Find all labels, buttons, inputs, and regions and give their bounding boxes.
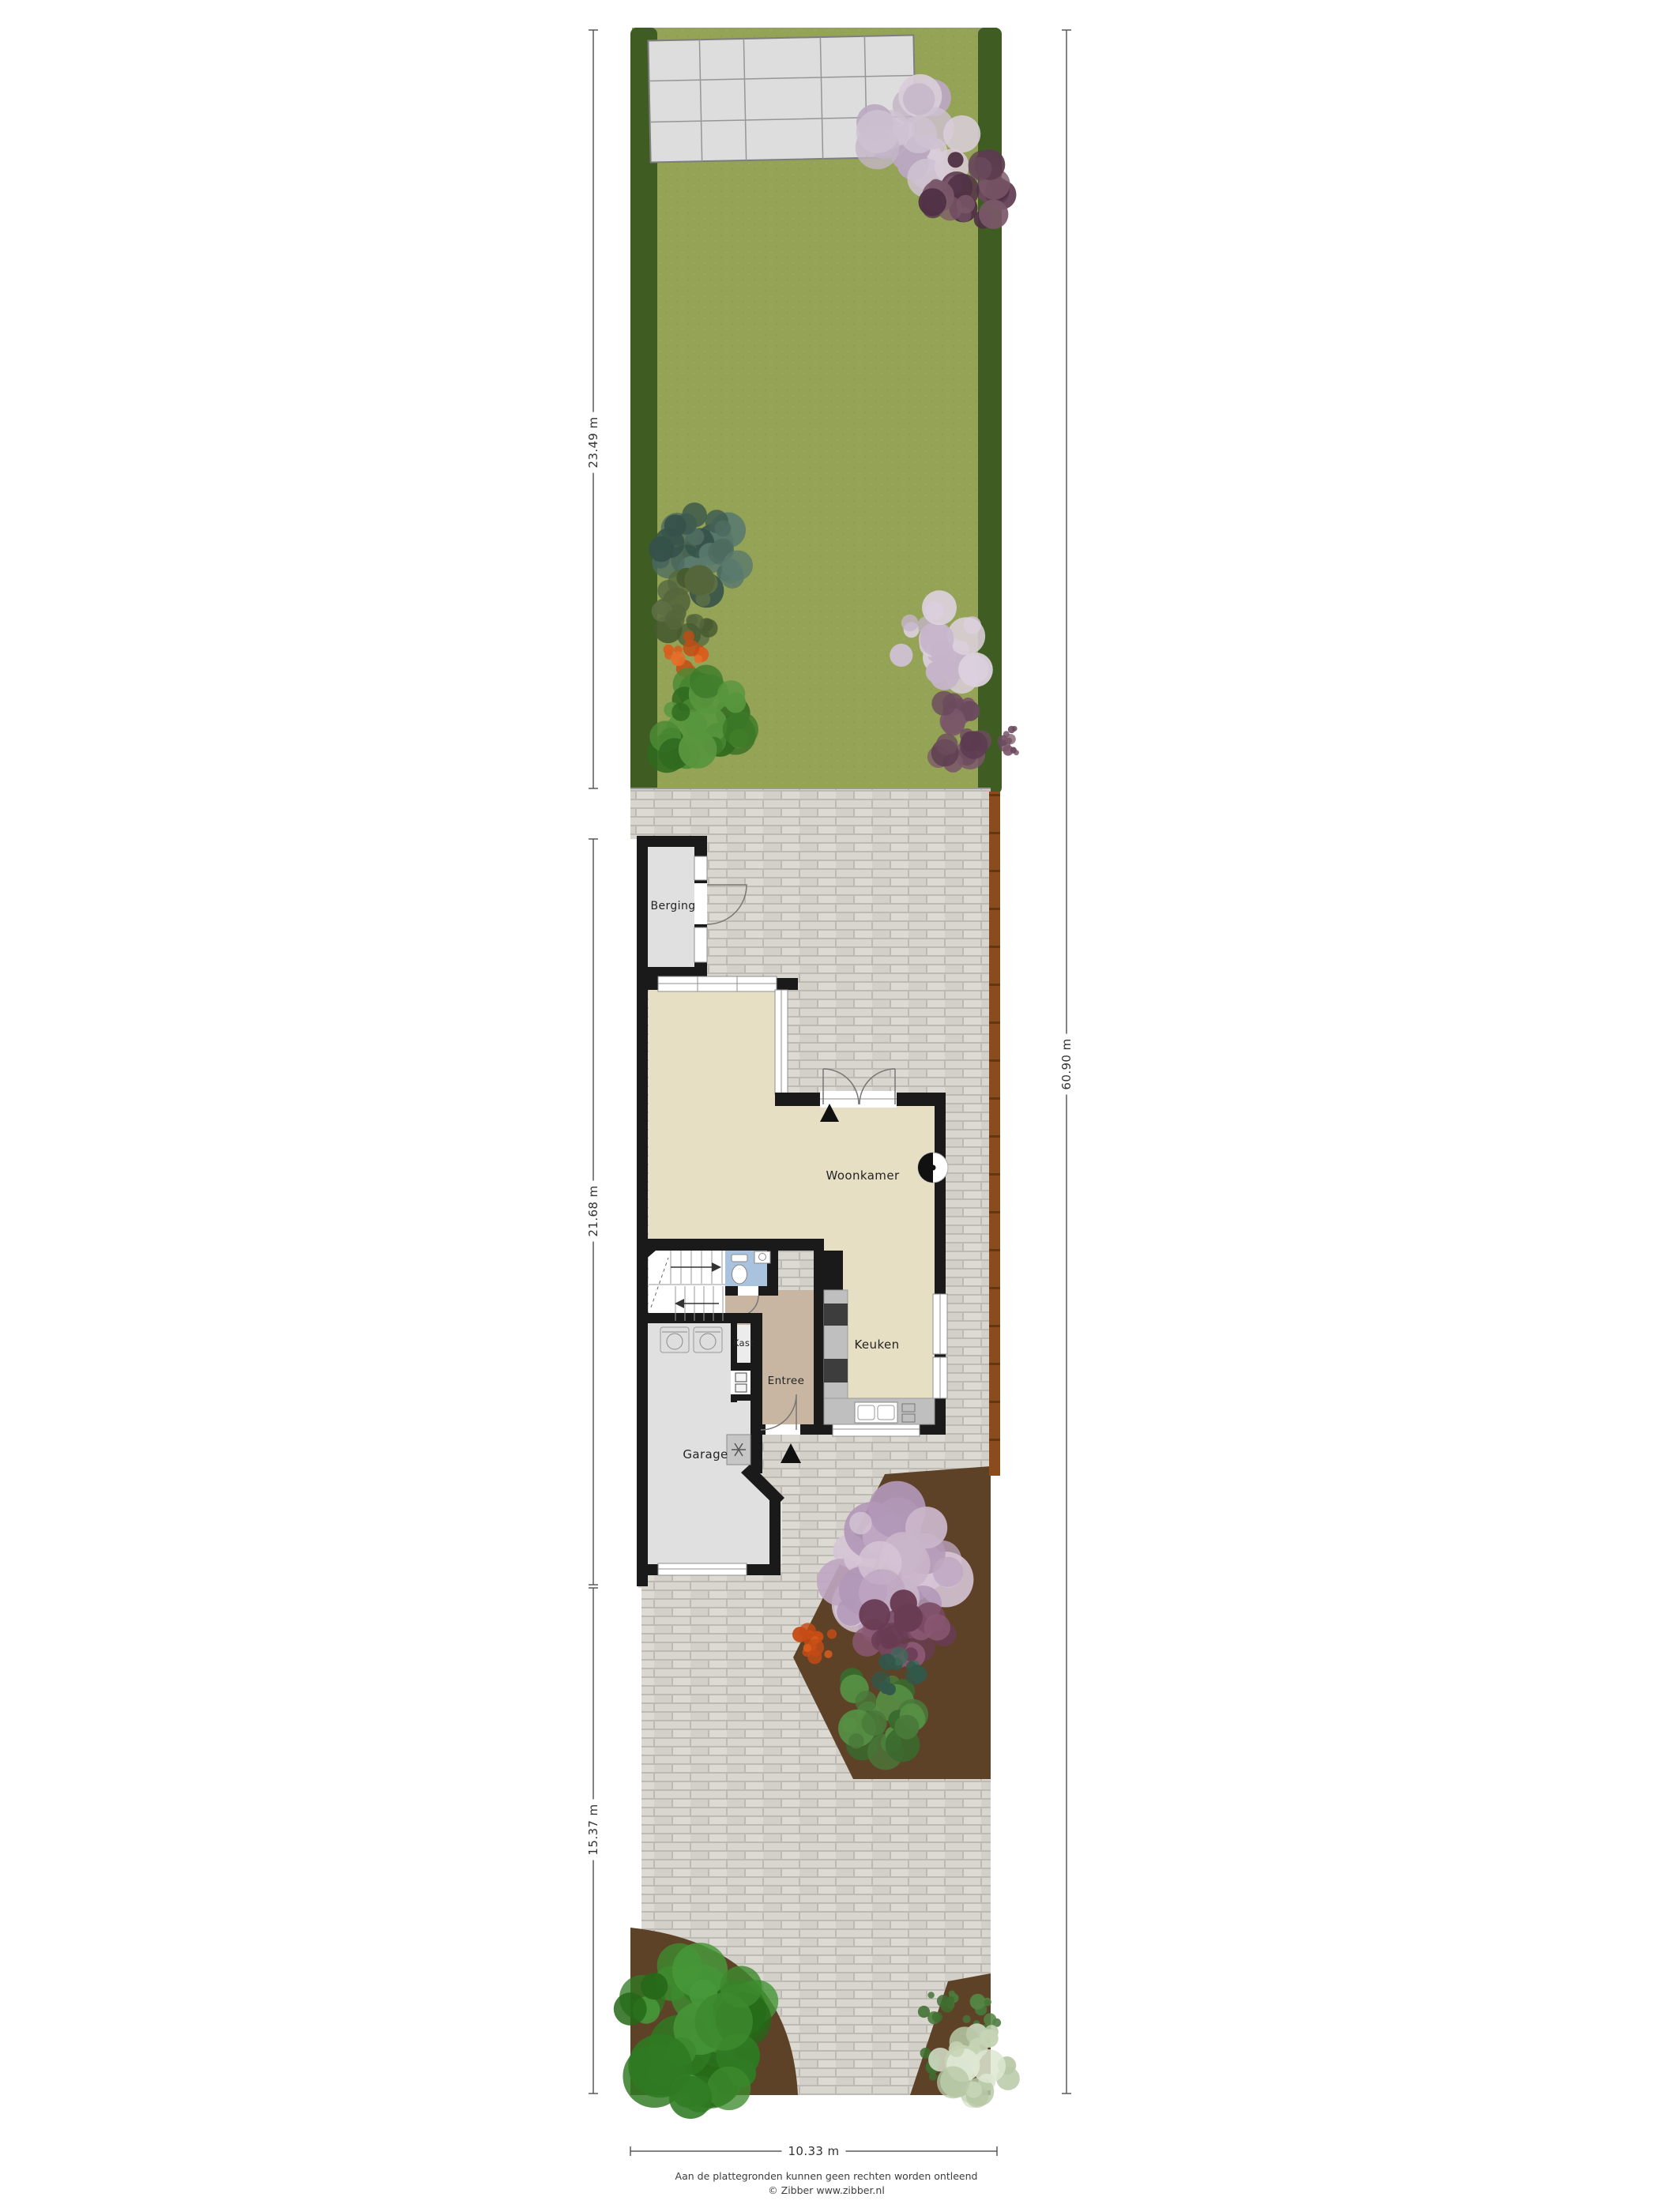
kitchen-sink-icon bbox=[855, 1402, 897, 1423]
toilet-icon bbox=[732, 1255, 747, 1284]
footer-disclaimer: Aan de plattegronden kunnen geen rechten… bbox=[675, 2169, 978, 2198]
room-label-berging: Berging bbox=[650, 900, 695, 912]
fence bbox=[989, 792, 1000, 1476]
garden bbox=[630, 28, 1019, 840]
oven-icon bbox=[824, 1303, 848, 1326]
washing-machine-icon bbox=[694, 1327, 722, 1352]
room-label-keuken: Keuken bbox=[854, 1337, 899, 1352]
room-label-woonkamer: Woonkamer bbox=[826, 1168, 899, 1183]
site-plan: Berging Woonkamer Keuken Entree Kast Gar… bbox=[0, 0, 1659, 2212]
sink-icon bbox=[754, 1251, 770, 1263]
room-label-garage: Garage bbox=[683, 1447, 728, 1461]
room-label-kast: Kast bbox=[733, 1337, 754, 1349]
boiler-icon bbox=[727, 1435, 750, 1465]
washing-machine-icon bbox=[660, 1327, 689, 1352]
site-plan-graphic bbox=[0, 0, 1659, 2212]
fireplace-icon bbox=[918, 1153, 948, 1183]
dimension-plot-width: 10.33 m bbox=[781, 2142, 845, 2160]
dimension-driveway-depth: 15.37 m bbox=[583, 1799, 604, 1860]
oven-icon bbox=[824, 1359, 848, 1382]
disclaimer-text: Aan de plattegronden kunnen geen rechten… bbox=[675, 2169, 978, 2184]
credit-text: © Zibber www.zibber.nl bbox=[675, 2184, 978, 2198]
dimension-total-depth: 60.90 m bbox=[1056, 1033, 1077, 1094]
dimension-house-depth: 21.68 m bbox=[583, 1180, 604, 1241]
dimension-garden-depth: 23.49 m bbox=[583, 412, 604, 472]
room-label-entree: Entree bbox=[768, 1375, 805, 1387]
